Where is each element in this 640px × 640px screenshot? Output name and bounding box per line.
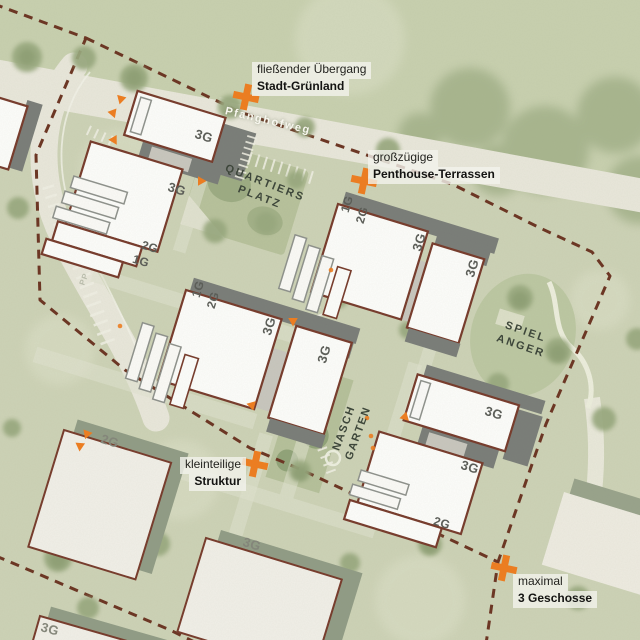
annotation-structure: kleinteilige Struktur [180, 457, 246, 491]
annotation-penthouse-line2: Penthouse-Terrassen [368, 167, 500, 184]
annotation-max-floors-line1: maximal [513, 574, 568, 591]
annotation-penthouse-line1: großzügige [368, 150, 438, 167]
annotation-penthouse: großzügige Penthouse-Terrassen [368, 150, 500, 184]
annotation-max-floors-line2: 3 Geschosse [513, 591, 597, 608]
site-plan-map: .bldg{fill:#fdfdfb;stroke:#76392A;stroke… [0, 0, 640, 640]
annotation-transition-line2: Stadt-Grünland [252, 79, 349, 96]
site-plan-canvas: .bldg{fill:#fdfdfb;stroke:#76392A;stroke… [0, 0, 640, 640]
paper-grain [0, 0, 640, 640]
annotation-structure-line2: Struktur [189, 474, 246, 491]
annotation-transition: fließender Übergang Stadt-Grünland [252, 62, 371, 96]
annotation-structure-line1: kleinteilige [180, 457, 246, 474]
annotation-max-floors: maximal 3 Geschosse [513, 574, 597, 608]
annotation-transition-line1: fließender Übergang [252, 62, 371, 79]
